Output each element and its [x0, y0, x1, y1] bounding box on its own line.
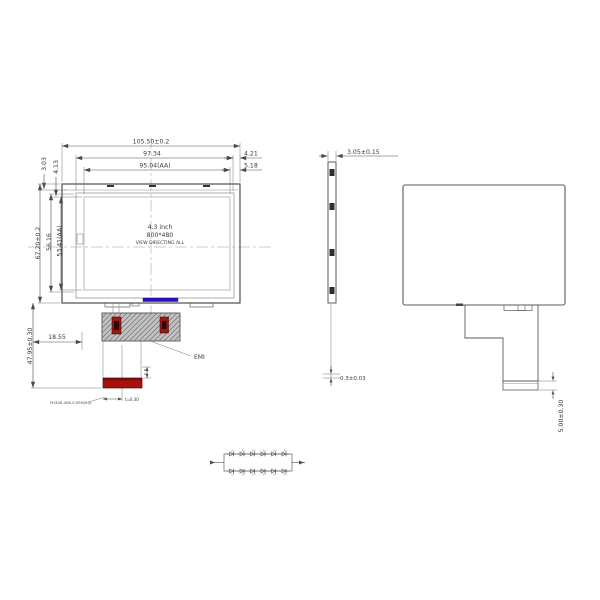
led-icon: [258, 469, 268, 476]
back-fpc-connector: [503, 381, 538, 390]
emi-shield-area: [102, 303, 180, 341]
dim-active-width: 95.04(AA): [139, 163, 170, 170]
dim-fpc-offset: 18.55: [48, 334, 66, 341]
view-direction-label: VIEW DIRECTING ALL: [136, 240, 185, 246]
led-icon: [248, 450, 258, 457]
dim-connector-lift: 1.5: [144, 368, 149, 375]
led-icon: [279, 450, 289, 457]
dim-overall-height: 67.20±0.2: [35, 227, 42, 260]
back-view: 5.00±0.30: [403, 185, 565, 432]
led-icon: [227, 450, 237, 457]
bezel-tick: [149, 185, 156, 187]
drawing-svg: 4.3 inch 800*480 VIEW DIRECTING ALL EMI …: [0, 0, 600, 600]
back-fpc-shape: [465, 305, 538, 381]
smd-component-core: [162, 321, 167, 329]
cathode-arrow-icon: [299, 461, 304, 465]
panel-size-label: 4.3 inch: [148, 224, 173, 231]
dim-right-gap-outline: 4.21: [244, 151, 258, 158]
smd-component-core: [114, 321, 119, 330]
bezel-notch: [77, 234, 83, 244]
dim-active-height: 53.41(AA): [57, 225, 64, 256]
side-tab: [330, 203, 335, 210]
dim-top-gap-active: 4.13: [53, 160, 60, 174]
dim-outline-width: 97.34: [143, 151, 161, 158]
dim-outline-height: 56.16: [46, 233, 53, 251]
dim-right-gap-active: 5.18: [244, 163, 258, 170]
led-icon: [258, 450, 268, 457]
bezel-tick: [203, 185, 210, 187]
anode-arrow-icon: [210, 461, 215, 465]
fpc-tail: [103, 341, 142, 401]
led-icon: [237, 469, 247, 476]
touch-fpc-bar: [143, 298, 178, 302]
backlight-circuit: [210, 450, 305, 476]
back-fpc-root-tab: [518, 305, 525, 311]
dim-overall-width: 105.50±0.2: [133, 139, 170, 146]
side-profile: [328, 162, 336, 303]
part-number-leader: [89, 397, 105, 402]
led-icon: [248, 469, 258, 476]
led-icon: [237, 450, 247, 457]
side-view: 3.05±0.15 0.3±0.03: [319, 149, 398, 386]
front-view: 4.3 inch 800*480 VIEW DIRECTING ALL EMI …: [28, 137, 272, 405]
side-tab: [330, 169, 335, 176]
emi-label: EMI: [194, 354, 205, 361]
side-tab: [330, 249, 335, 256]
dim-fpc-exit: 5.00±0.30: [558, 400, 565, 433]
dim-top-gap-outline: 3.03: [41, 157, 48, 171]
led-icon: [269, 469, 279, 476]
circuit-loop: [224, 454, 292, 471]
bezel-tick: [107, 185, 114, 187]
lcd-module-drawing: 4.3 inch 800*480 VIEW DIRECTING ALL EMI …: [0, 0, 600, 600]
connector-part-number: FH34S-40S-0.5SH(50): [50, 400, 92, 405]
dim-bottom-gap: 0.3±0.03: [340, 376, 366, 382]
back-tab-mark: [456, 304, 463, 307]
side-tab: [330, 287, 335, 294]
back-outline: [403, 185, 565, 305]
dim-thickness: 3.05±0.15: [347, 149, 380, 156]
led-string-top: [227, 450, 290, 457]
emi-leader-line: [150, 341, 191, 356]
dim-fpc-length: 47.95±0.30: [27, 328, 34, 365]
fpc-connector-edge: [103, 378, 142, 381]
dim-fpc-thickness: t=0.30: [125, 397, 139, 402]
led-icon: [227, 469, 237, 476]
led-string-bottom: [227, 469, 290, 476]
led-icon: [279, 469, 289, 476]
resolution-label: 800*480: [147, 232, 174, 239]
led-icon: [269, 450, 279, 457]
